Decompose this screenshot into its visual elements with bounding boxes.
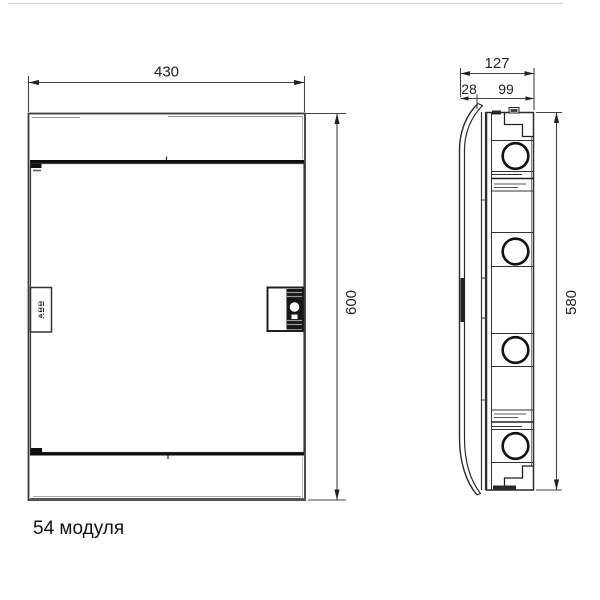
door-top-edge-bar <box>30 160 304 163</box>
door-bottom-edge-bar <box>30 453 304 456</box>
arrow-bottom <box>554 480 559 491</box>
door-depth-dim-label: 28 <box>461 81 477 97</box>
side-door-tip-top <box>478 104 483 106</box>
arrow-left <box>461 96 469 100</box>
bottom-edge-block <box>493 486 516 491</box>
enclosure-dimension-drawing: ABB 430 <box>0 0 600 600</box>
brand-plate: ABB <box>31 288 52 333</box>
knockout-circle-4 <box>503 433 529 459</box>
door-latch <box>268 288 304 332</box>
door-panel <box>31 164 305 453</box>
technical-drawing-svg: ABB 430 <box>0 0 600 600</box>
arrow-left <box>461 71 471 76</box>
arrow-right <box>525 71 535 76</box>
top-fixing-tab-fill <box>511 109 518 112</box>
side-door-tip-bottom <box>477 493 481 495</box>
top-edge-block <box>492 111 501 115</box>
side-height-dim-label: 580 <box>563 290 580 315</box>
knockout-circle-3 <box>503 337 529 363</box>
arrow-top <box>334 114 339 125</box>
arrow-left <box>29 80 40 85</box>
arrow-right <box>526 96 535 100</box>
latch-knob <box>290 302 300 312</box>
knockout-circle-2 <box>503 239 529 265</box>
knockout-circle-1 <box>503 143 529 169</box>
side-view <box>460 104 534 496</box>
caption-modules: 54 модуля <box>33 518 124 539</box>
width-dim-label: 430 <box>154 64 179 81</box>
dimension-height-600 <box>306 114 346 501</box>
arrow-top <box>554 113 559 124</box>
hinge-top <box>31 164 42 169</box>
side-door-back-edge <box>465 106 483 494</box>
dimension-width-430 <box>29 76 305 112</box>
depth-dim-label: 127 <box>484 55 509 72</box>
dimension-height-580 <box>536 113 562 491</box>
hinge-bottom <box>31 448 43 453</box>
side-brand-plate-edge <box>461 278 465 322</box>
latch-slot <box>292 315 298 320</box>
front-view: ABB <box>29 114 306 501</box>
height-dim-label: 600 <box>343 290 360 315</box>
box-depth-dim-label: 99 <box>498 81 514 97</box>
arrow-bottom <box>334 490 339 501</box>
arrow-right <box>294 80 305 85</box>
